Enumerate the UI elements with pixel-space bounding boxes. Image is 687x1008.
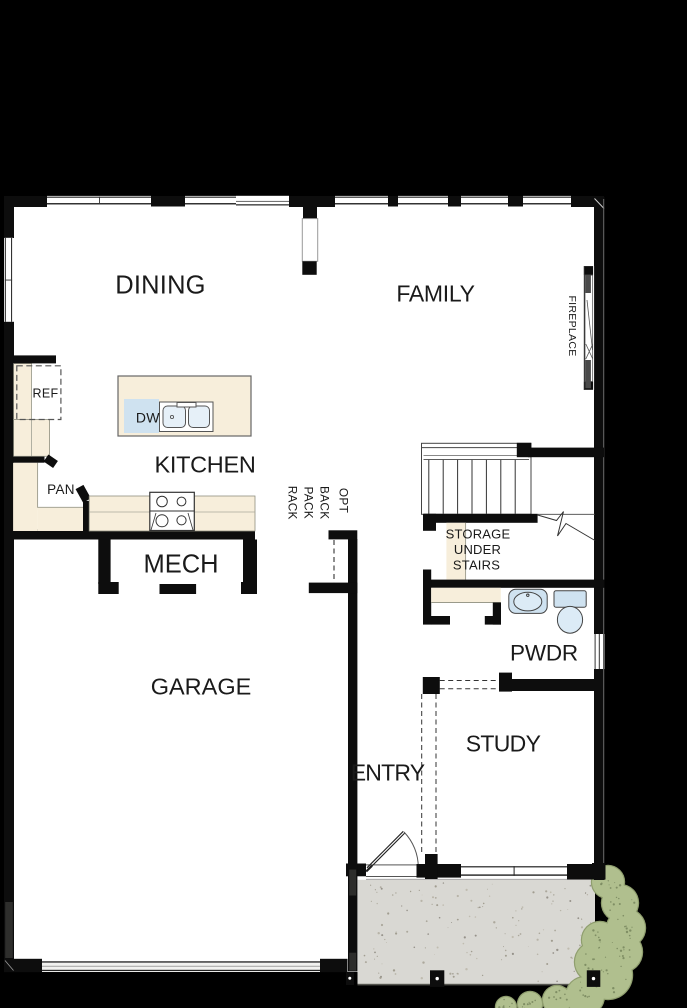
svg-text:REF: REF bbox=[33, 387, 59, 401]
svg-text:FAMILY: FAMILY bbox=[396, 281, 474, 307]
svg-text:OPT: OPT bbox=[337, 488, 351, 513]
svg-text:KITCHEN: KITCHEN bbox=[154, 452, 255, 478]
svg-text:FIREPLACE: FIREPLACE bbox=[566, 295, 578, 356]
svg-text:ENTRY: ENTRY bbox=[351, 760, 425, 786]
svg-text:GARAGE: GARAGE bbox=[151, 674, 252, 700]
svg-text:STUDY: STUDY bbox=[466, 731, 541, 757]
svg-text:DINING: DINING bbox=[115, 272, 205, 300]
svg-text:BACK: BACK bbox=[317, 486, 331, 519]
svg-text:RACK: RACK bbox=[286, 486, 300, 520]
svg-text:STAIRS: STAIRS bbox=[453, 558, 500, 573]
svg-text:PWDR: PWDR bbox=[510, 641, 578, 666]
svg-text:PAN: PAN bbox=[47, 482, 75, 497]
svg-text:STORAGE: STORAGE bbox=[446, 527, 511, 542]
svg-text:MECH: MECH bbox=[143, 551, 218, 579]
svg-text:DW: DW bbox=[136, 409, 160, 425]
svg-text:UNDER: UNDER bbox=[454, 542, 501, 557]
svg-text:PACK: PACK bbox=[301, 486, 315, 518]
